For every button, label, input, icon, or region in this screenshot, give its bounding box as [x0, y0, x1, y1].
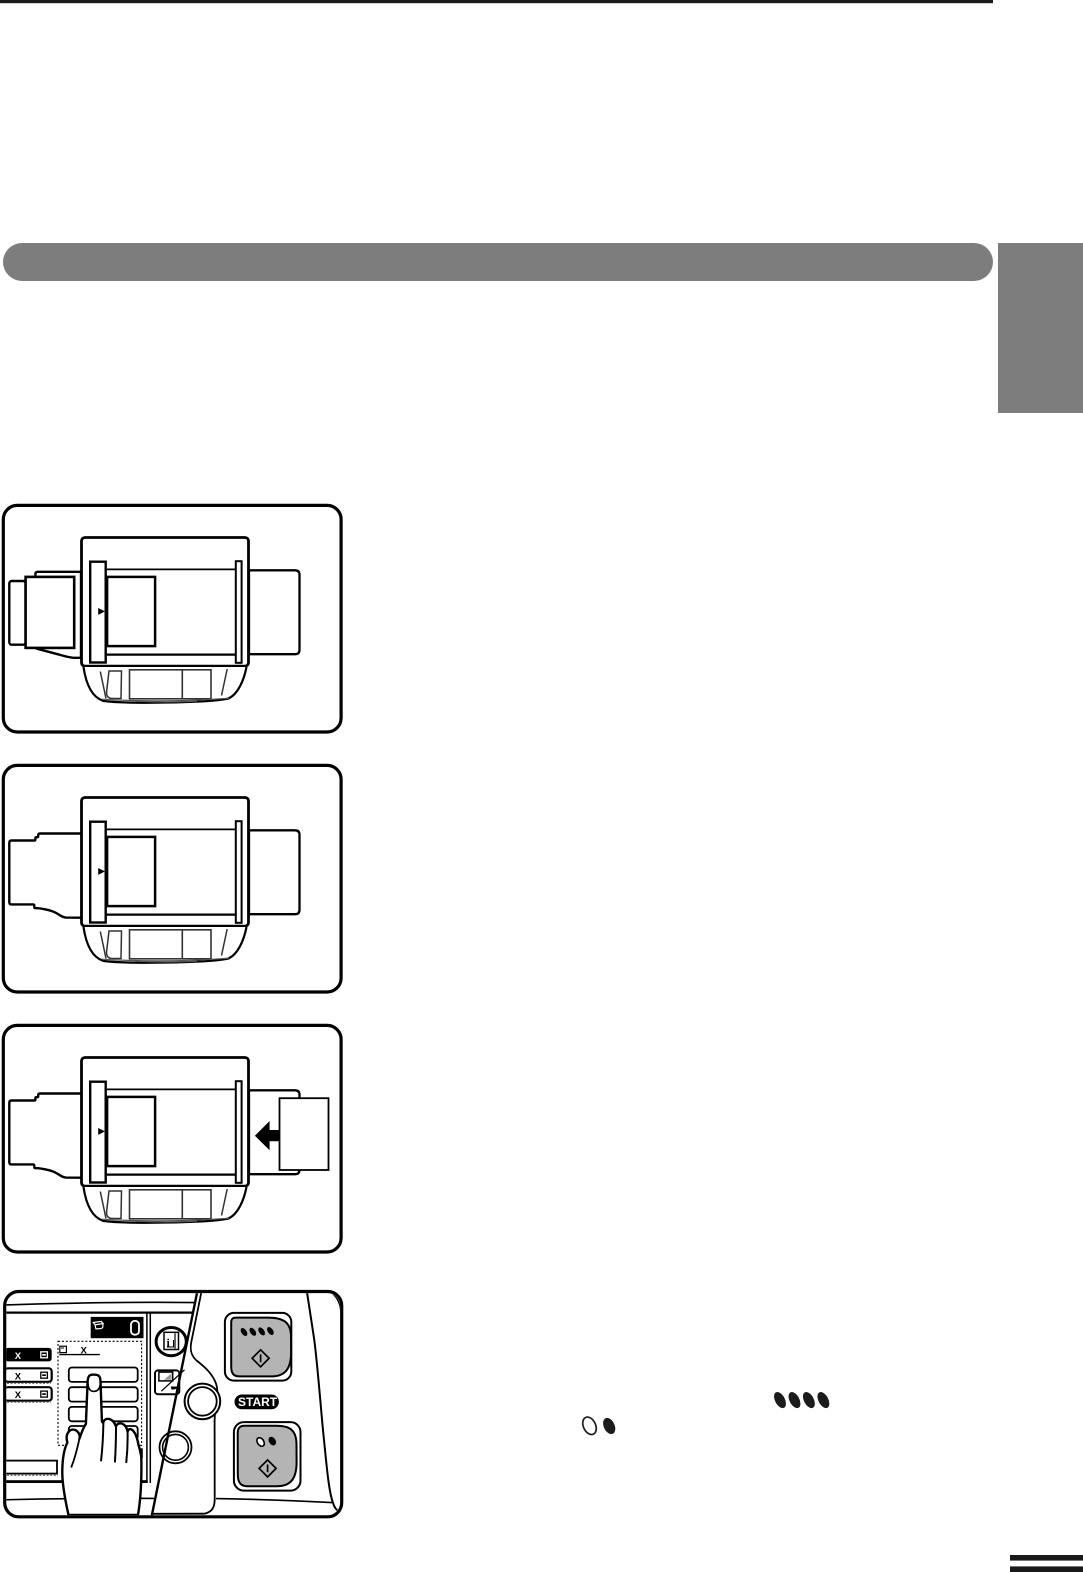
svg-text:START: START	[238, 1395, 278, 1409]
svg-text:X: X	[15, 1351, 22, 1362]
svg-text:X: X	[15, 1390, 22, 1401]
svg-text:X: X	[15, 1371, 22, 1382]
